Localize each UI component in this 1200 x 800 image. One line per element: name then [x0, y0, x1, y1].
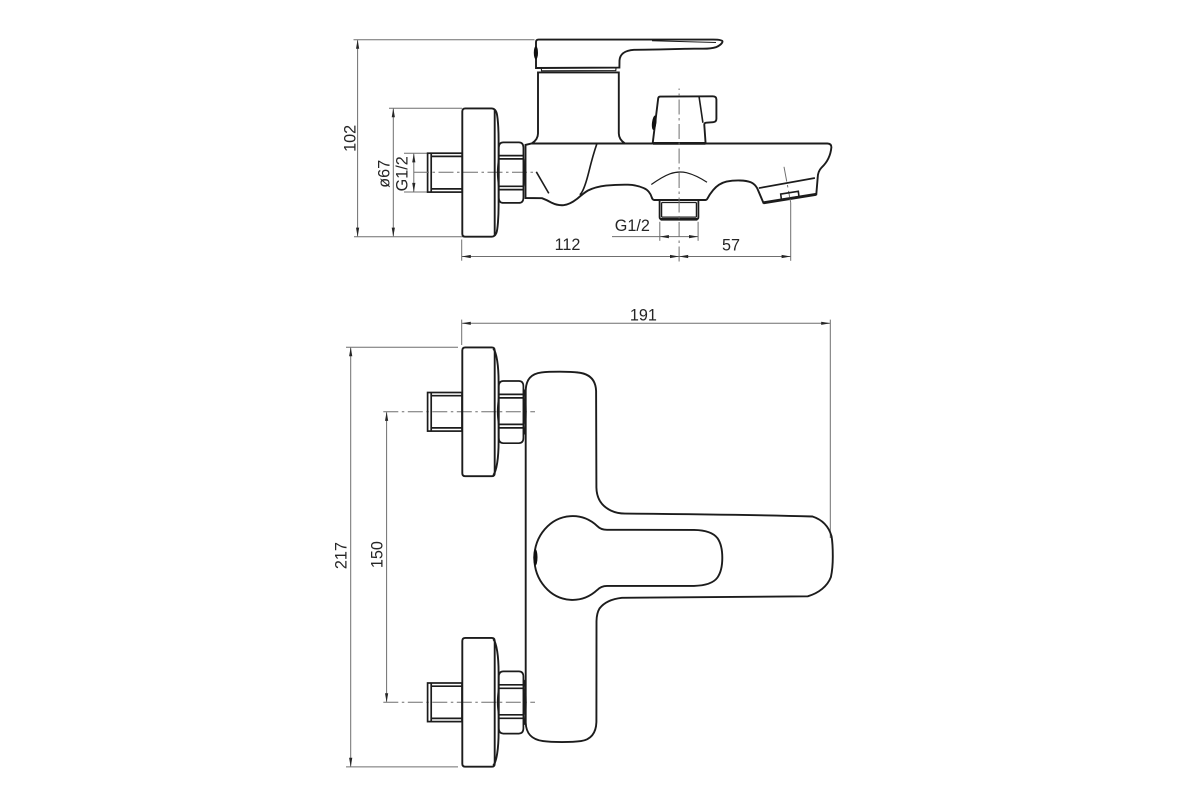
svg-text:150: 150 [369, 541, 387, 568]
svg-text:G1/2: G1/2 [615, 217, 650, 235]
svg-text:57: 57 [722, 236, 740, 254]
svg-text:G1/2: G1/2 [394, 156, 412, 191]
svg-text:102: 102 [341, 125, 359, 152]
svg-text:217: 217 [333, 542, 351, 569]
svg-text:112: 112 [555, 236, 581, 254]
svg-text:191: 191 [630, 306, 657, 324]
svg-text:ø67: ø67 [376, 160, 394, 188]
